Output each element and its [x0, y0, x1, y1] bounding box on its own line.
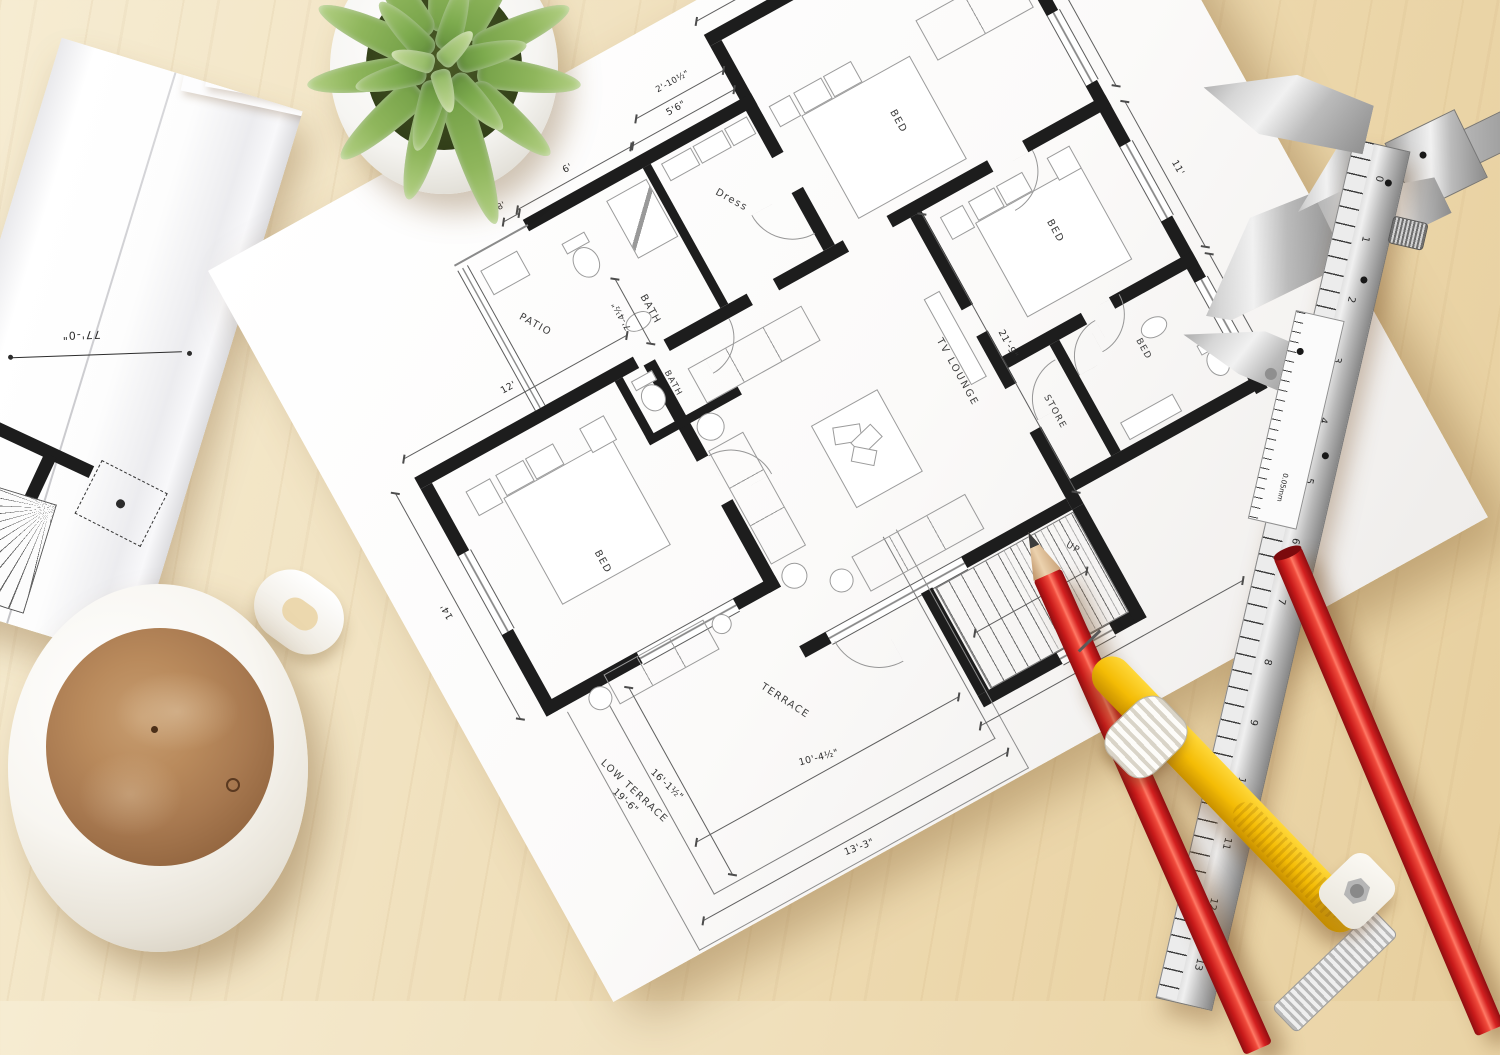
coffee-bubble	[151, 726, 158, 733]
desk-scene: { "scene": { "setting": "architectural f…	[0, 0, 1500, 1001]
roll-dimension-label: 77'-0"	[61, 328, 100, 342]
window	[1047, 9, 1099, 86]
room-label-patio: PATIO	[517, 312, 553, 339]
wall-segment	[1022, 95, 1111, 152]
wardrobe	[915, 0, 1034, 61]
dim-bath-width: 6'	[561, 162, 575, 176]
coffee-bubble	[226, 778, 240, 792]
shower	[606, 179, 678, 259]
coffee-surface	[46, 628, 274, 866]
dim-left-bed-width: 12'	[499, 379, 518, 396]
dim-line	[503, 213, 519, 223]
coffee-swirl	[78, 752, 183, 838]
wall-segment	[773, 240, 849, 290]
dim-left-bed-height: 14'	[439, 602, 456, 621]
compass-divider	[1040, 556, 1500, 1026]
mug-handle-hole	[277, 592, 323, 635]
coffee-swirl	[114, 671, 239, 752]
roll-dim-line	[12, 351, 182, 358]
nightstand	[465, 478, 503, 516]
room-label-bed-bath: BED	[1133, 337, 1153, 362]
coffee-mug	[8, 584, 308, 952]
planter	[480, 251, 530, 296]
thumbscrew	[1387, 216, 1428, 251]
room-label-dress: Dress	[713, 187, 749, 214]
dim-end-dot	[186, 350, 192, 356]
wall-segment	[1030, 427, 1084, 510]
nightstand	[940, 205, 975, 240]
wall-segment	[421, 483, 470, 557]
compass-needle	[1078, 630, 1102, 653]
